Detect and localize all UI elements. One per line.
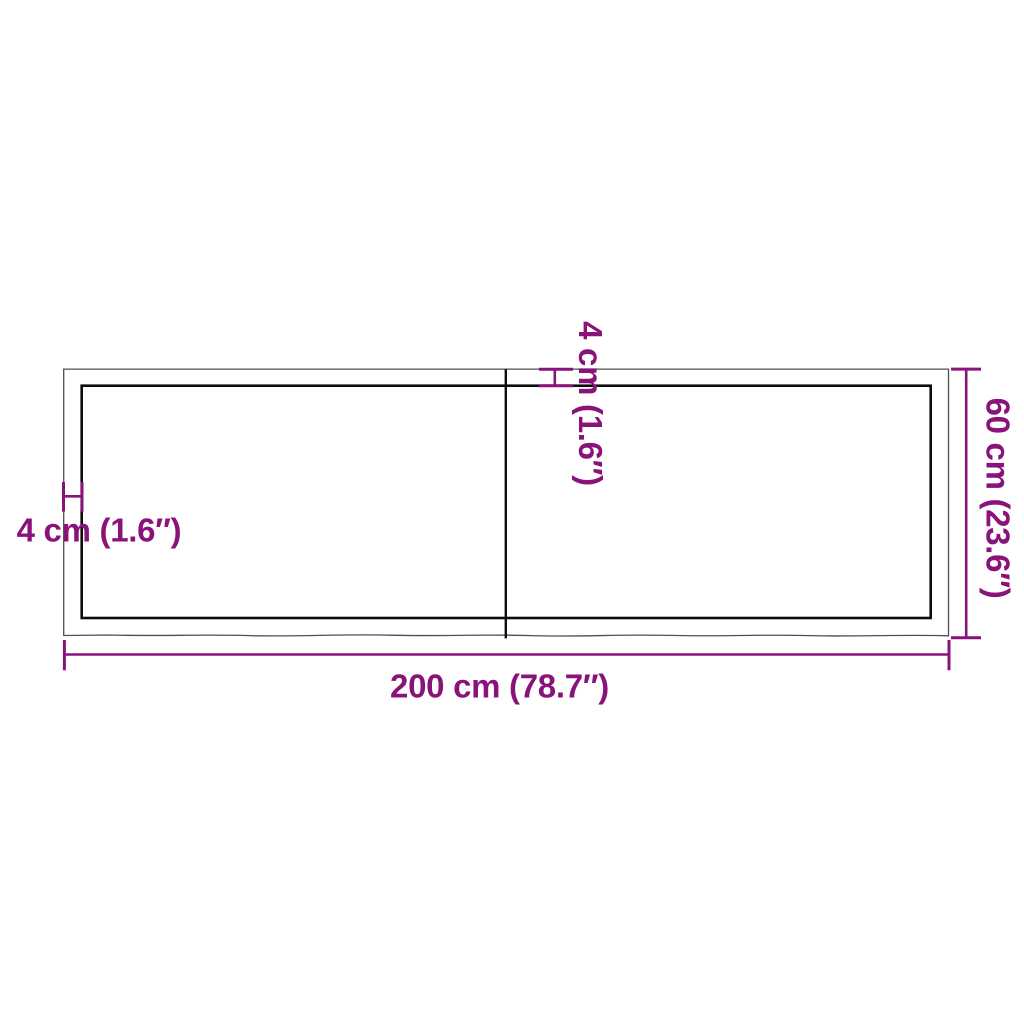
svg-text:4 cm (1.6″): 4 cm (1.6″) (17, 511, 182, 548)
svg-text:4 cm (1.6″): 4 cm (1.6″) (572, 321, 609, 486)
svg-text:60 cm (23.6″): 60 cm (23.6″) (980, 398, 1017, 599)
svg-text:200 cm (78.7″): 200 cm (78.7″) (390, 668, 609, 705)
